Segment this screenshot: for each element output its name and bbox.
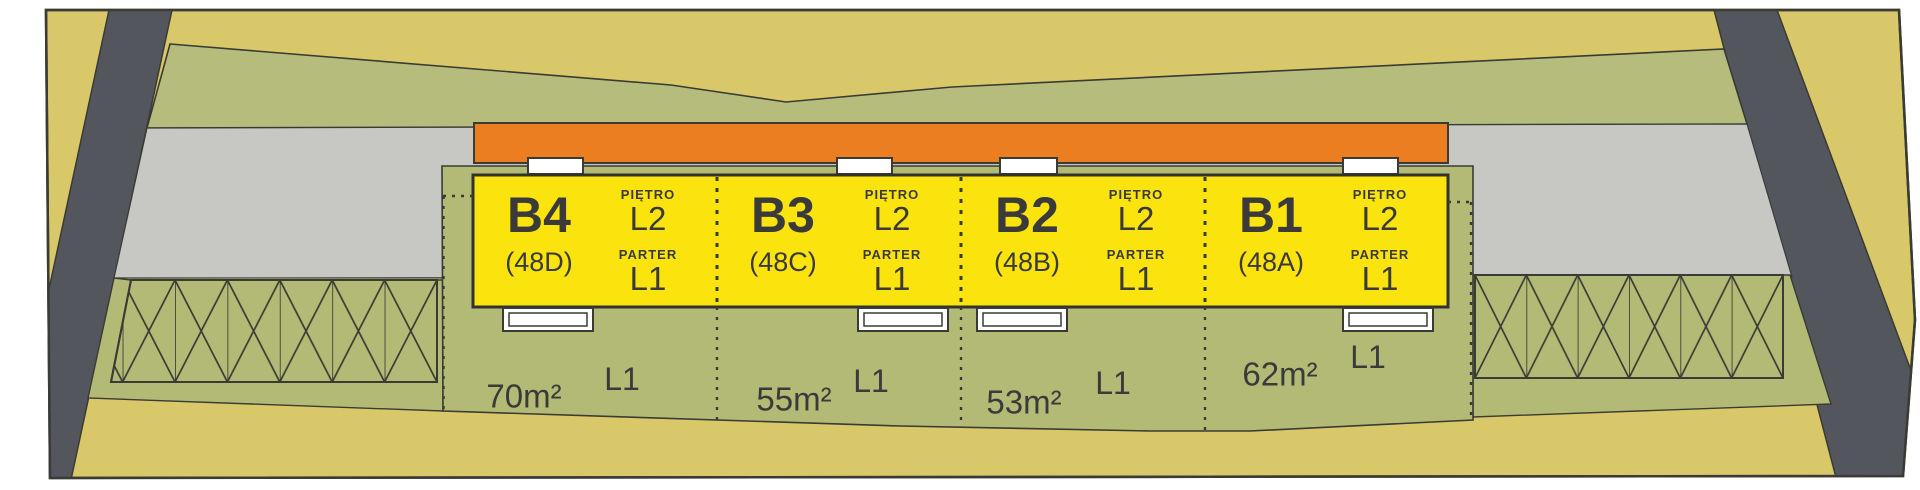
entrance-tab-b4 <box>528 158 583 174</box>
unit-id-block: B4 (48D) <box>479 188 599 278</box>
site-plan: ul. PÓŁNOCNA ul. ŚCIEŻKI B4 (48D) PIĘTRO… <box>0 0 1920 490</box>
ground-value: L1 <box>1089 262 1183 296</box>
parking-right <box>1475 275 1783 378</box>
parking-left <box>111 280 437 382</box>
entrance-tab-b1 <box>1343 158 1398 174</box>
unit-b4[interactable]: B4 (48D) PIĘTRO L2 PARTER L1 <box>473 175 717 307</box>
unit-number: (48A) <box>1211 247 1331 278</box>
terrace-b2 <box>977 308 1067 331</box>
unit-id-block: B2 (48B) <box>967 188 1087 278</box>
unit-number: (48B) <box>967 247 1087 278</box>
floor-value: L2 <box>1089 202 1183 236</box>
floor-value: L2 <box>1333 202 1427 236</box>
unit-b3[interactable]: B3 (48C) PIĘTRO L2 PARTER L1 <box>717 175 961 307</box>
unit-levels-block: PIĘTRO L2 PARTER L1 <box>1089 187 1183 296</box>
garden-level-b2: L1 <box>1095 367 1131 399</box>
unit-levels-block: PIĘTRO L2 PARTER L1 <box>845 187 939 296</box>
entrance-tab-b3 <box>837 158 892 174</box>
garden-area-b4: 70m² <box>486 380 561 413</box>
floor-value: L2 <box>601 202 695 236</box>
unit-b1[interactable]: B1 (48A) PIĘTRO L2 PARTER L1 <box>1205 175 1449 307</box>
unit-name: B2 <box>967 188 1087 242</box>
unit-number: (48D) <box>479 247 599 278</box>
ground-value: L1 <box>845 262 939 296</box>
unit-name: B4 <box>479 188 599 242</box>
unit-levels-block: PIĘTRO L2 PARTER L1 <box>601 187 695 296</box>
terrace-b3 <box>858 308 948 331</box>
garden-area-b1: 62m² <box>1242 358 1317 391</box>
garden-level-b3: L1 <box>853 365 889 397</box>
terrace-b1 <box>1343 308 1433 331</box>
entrance-tab-b2 <box>1000 158 1057 174</box>
floor-value: L2 <box>845 202 939 236</box>
garden-level-b4: L1 <box>604 363 640 395</box>
garden-area-b2: 53m² <box>986 386 1061 419</box>
unit-name: B1 <box>1211 188 1331 242</box>
terrace-b4 <box>503 308 593 331</box>
garden-level-b1: L1 <box>1350 341 1386 373</box>
garden-area-b3: 55m² <box>756 383 831 416</box>
unit-name: B3 <box>723 188 843 242</box>
roof-strip <box>474 123 1448 163</box>
ground-value: L1 <box>601 262 695 296</box>
unit-number: (48C) <box>723 247 843 278</box>
ground-value: L1 <box>1333 262 1427 296</box>
unit-id-block: B3 (48C) <box>723 188 843 278</box>
unit-levels-block: PIĘTRO L2 PARTER L1 <box>1333 187 1427 296</box>
unit-id-block: B1 (48A) <box>1211 188 1331 278</box>
unit-b2[interactable]: B2 (48B) PIĘTRO L2 PARTER L1 <box>961 175 1205 307</box>
